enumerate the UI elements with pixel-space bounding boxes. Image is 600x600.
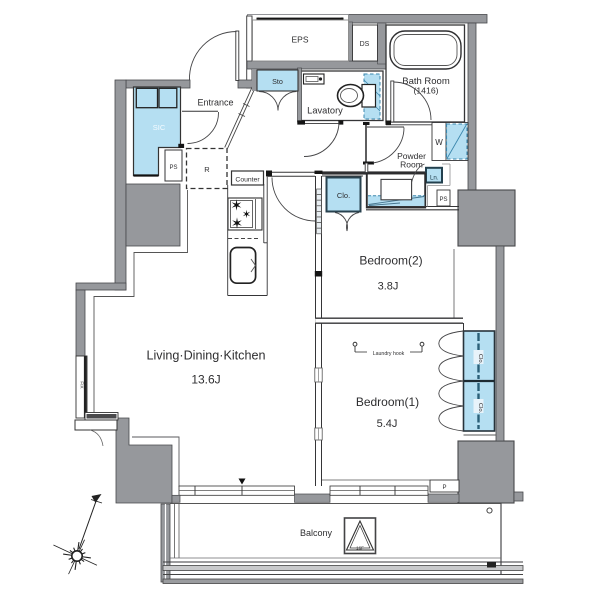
svg-text:16F: 16F <box>356 546 364 551</box>
svg-text:EPS: EPS <box>291 35 308 45</box>
svg-text:5.4J: 5.4J <box>377 418 398 430</box>
svg-text:SIC: SIC <box>153 123 166 132</box>
svg-text:P: P <box>442 485 446 491</box>
svg-text:Clo.: Clo. <box>337 191 350 200</box>
svg-text:FIX: FIX <box>80 381 85 388</box>
svg-text:Entrance: Entrance <box>197 98 233 108</box>
svg-text:3.8J: 3.8J <box>378 281 399 293</box>
svg-text:Balcony: Balcony <box>300 528 333 538</box>
svg-text:Ln.: Ln. <box>430 174 439 181</box>
svg-text:PS: PS <box>169 165 177 171</box>
svg-text:W: W <box>435 138 443 147</box>
svg-text:Bedroom(2): Bedroom(2) <box>359 254 422 268</box>
svg-text:R: R <box>204 165 210 174</box>
svg-text:Bedroom(1): Bedroom(1) <box>356 395 419 409</box>
svg-text:Clo.: Clo. <box>477 354 483 365</box>
svg-text:DS: DS <box>360 41 370 48</box>
svg-text:Counter: Counter <box>235 176 260 183</box>
svg-text:Laundry hook: Laundry hook <box>373 351 405 357</box>
svg-text:Clo.: Clo. <box>477 403 483 414</box>
svg-text:Room: Room <box>400 160 423 170</box>
svg-text:Living·Dining·Kitchen: Living·Dining·Kitchen <box>146 349 265 363</box>
svg-text:PS: PS <box>439 197 447 203</box>
svg-text:Lavatory: Lavatory <box>307 106 343 116</box>
svg-text:13.6J: 13.6J <box>191 373 220 387</box>
svg-text:Sto: Sto <box>272 77 283 86</box>
